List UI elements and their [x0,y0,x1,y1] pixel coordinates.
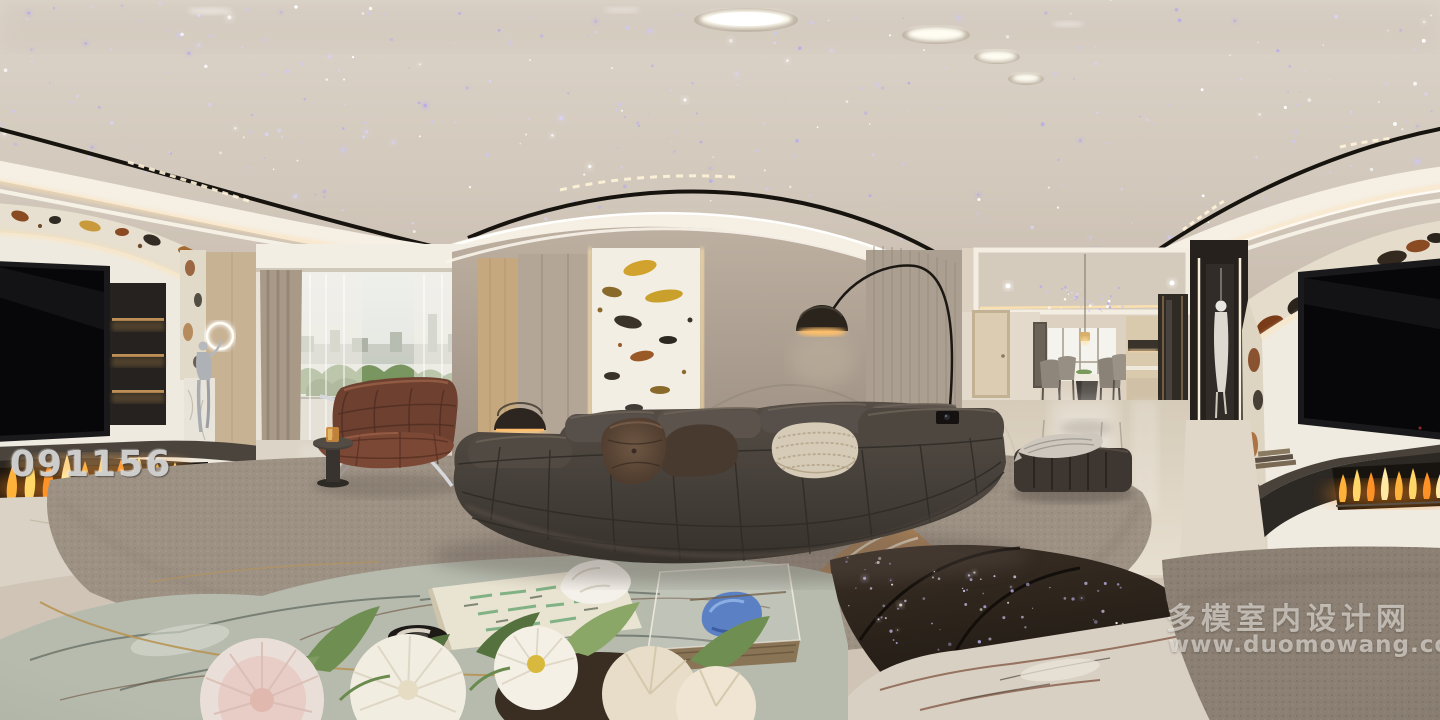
sofa-pillow-dark2 [661,424,738,477]
watermark-site-url: www.duomowang.com [1168,632,1440,658]
amber-glass [326,427,339,442]
downlight [974,50,1020,64]
panorama-photo: 091156 多模室内设计网 www.duomowang.com [0,0,1440,720]
sofa-pillow-velvet [601,418,666,484]
downlight [694,8,798,32]
tv-logo-dot [1419,427,1422,430]
hall-door [972,310,1010,398]
fireplace-right [1324,462,1440,510]
marble-art-panel [588,248,704,428]
hall-ceiling [976,250,1188,312]
downlight-faint [1052,21,1084,27]
downlight-faint [188,8,232,15]
downlight [902,26,970,44]
tv-screen-right [1298,258,1440,440]
kitchen-cabinets [1126,316,1160,414]
tv-screen-left [0,261,110,442]
drape-left [260,270,302,456]
camera-device [936,411,959,424]
sofa-pillow-knit [772,422,858,478]
downlight [1008,73,1044,85]
downlight-faint [604,7,640,13]
shelving-unit [110,283,166,425]
watermark-photo-id: 091156 [10,444,172,485]
